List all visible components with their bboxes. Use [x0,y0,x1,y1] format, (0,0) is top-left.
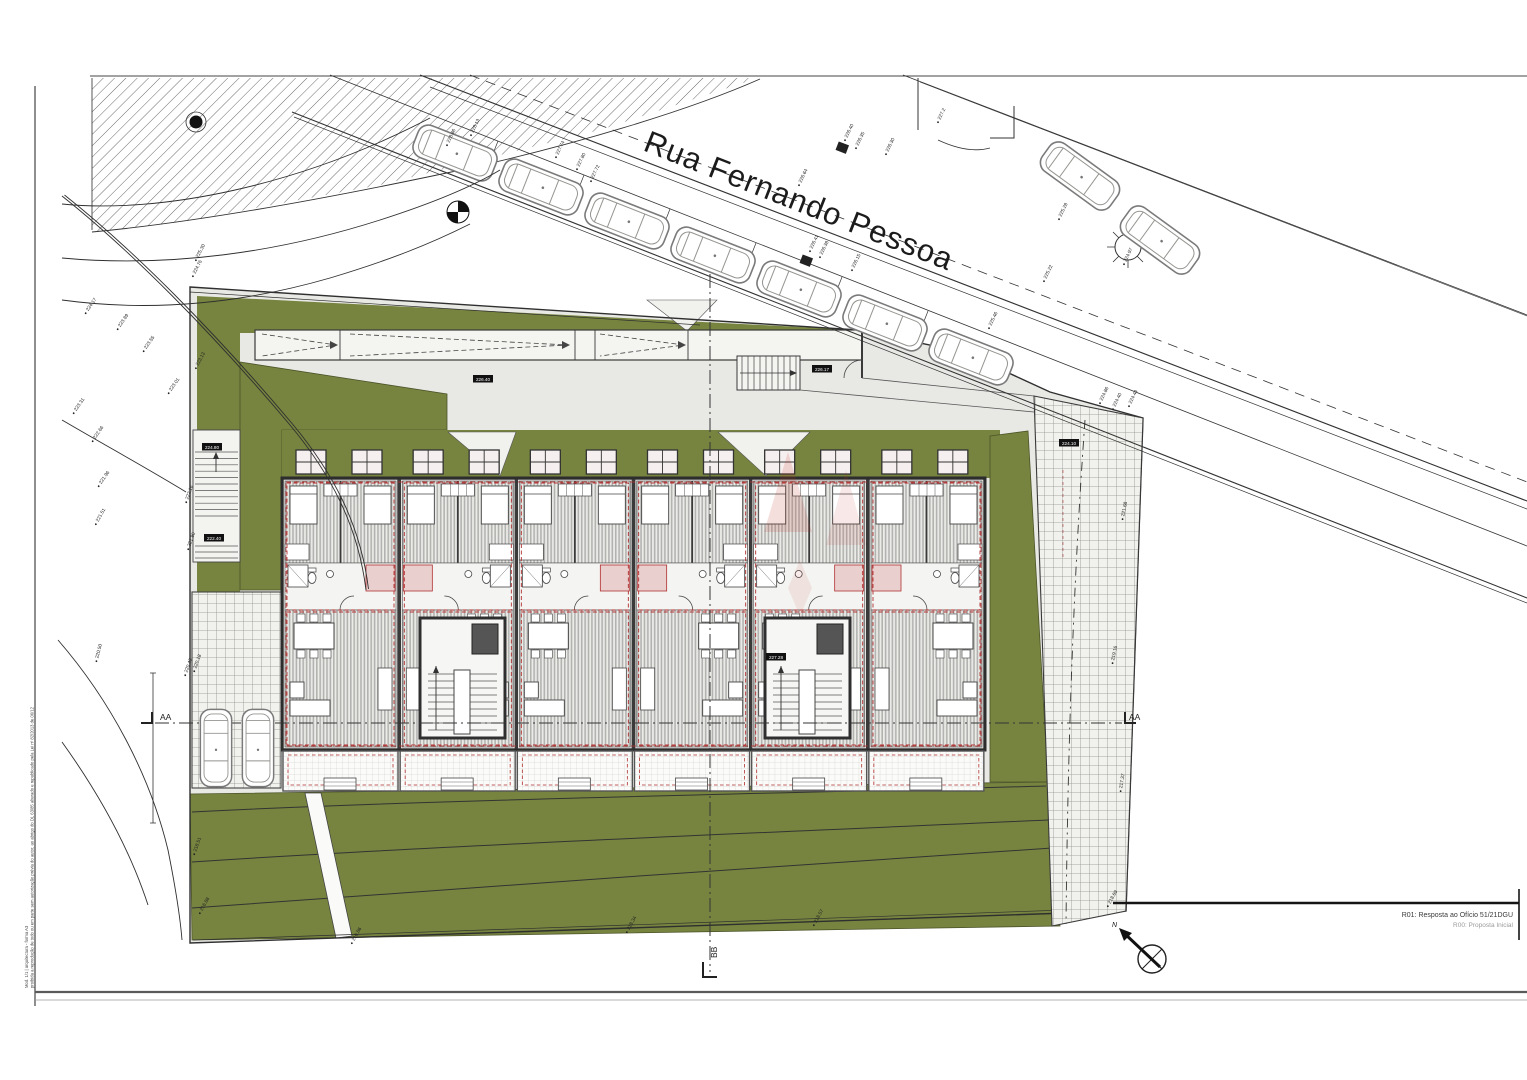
section-label-bb: BB [709,946,719,958]
svg-text:226.40: 226.40 [476,377,490,382]
elevation-label: 224.76 [190,259,204,279]
elevation-label: 226.40 [842,123,856,143]
svg-text:226.40: 226.40 [844,123,856,139]
lawn-upper-strip [197,296,858,333]
dwelling-unit [869,479,985,750]
elevation-label: 225.22 [1041,264,1055,284]
svg-text:226.30: 226.30 [885,137,897,153]
skylight [469,450,499,474]
level-box: 224.10 [1059,439,1079,447]
exterior-stairs-east [737,356,800,390]
elevation-label: 225.30 [193,243,207,263]
section-label-aa-right: AA [1129,712,1141,722]
level-box: 227.28 [766,653,786,661]
parked-car [668,224,759,286]
level-box: 224.80 [202,443,222,451]
site-plan-drawing: AA AA BB Rua Fernando Pessoa [0,0,1527,1080]
catch-basin [836,141,849,153]
dwelling-unit [283,479,399,750]
svg-text:227.2: 227.2 [937,107,948,121]
catch-basin [800,254,813,266]
svg-text:224.80: 224.80 [205,445,219,450]
svg-text:226.15: 226.15 [851,253,863,269]
elevation-label: 223.31 [71,397,87,416]
svg-text:224.97: 224.97 [1123,247,1135,263]
skylight [882,450,912,474]
svg-text:224.17: 224.17 [85,297,99,313]
parked-car [1116,202,1204,279]
elevation-label: 224.44 [1126,389,1140,409]
elevation-label: 221.96 [96,470,112,489]
elevation-label: 226.15 [849,253,863,273]
svg-text:226.41: 226.41 [809,234,821,250]
elevation-label: 227.74 [553,140,567,160]
svg-text:227.74: 227.74 [555,140,567,156]
skylight [296,450,326,474]
driveway [1034,396,1143,926]
svg-text:226.35: 226.35 [855,131,867,147]
dwelling-unit [517,479,633,750]
svg-text:223.55: 223.55 [143,335,157,351]
patio [283,751,398,791]
svg-text:223.89: 223.89 [117,313,131,329]
elevation-label: 226.38 [817,240,831,260]
elevation-label: 227.72 [588,164,602,184]
elevation-label: 224.40 [1110,392,1124,412]
revision-r01: R01: Resposta ao Ofício 51/21DGU [1402,912,1513,919]
stair-core [420,618,505,738]
elevation-label: 225.46 [986,311,1000,331]
geodetic-survey-marker [447,201,469,223]
parking-area [150,592,281,823]
svg-text:221.51: 221.51 [95,507,108,523]
stair-core [765,618,850,738]
skylight [530,450,560,474]
parked-car [582,190,673,252]
elevation-label: 225.28 [1056,202,1070,222]
level-box: 226.40 [473,375,493,383]
svg-text:224.40: 224.40 [1112,392,1124,408]
lawn-left-margin [197,300,240,430]
parked-car [1036,138,1124,215]
svg-text:221.96: 221.96 [98,470,112,486]
elevation-label: 224.17 [83,297,99,316]
svg-text:227.80: 227.80 [576,152,588,168]
elevation-label: 223.01 [166,377,182,396]
elevation-label: 226.35 [853,131,867,151]
elevation-label: 223.55 [141,335,157,354]
svg-text:223.31: 223.31 [73,397,87,413]
svg-text:224.44: 224.44 [1128,389,1140,405]
elevation-label: 221.51 [93,507,108,526]
building [282,450,985,791]
site-plan-page: AA AA BB Rua Fernando Pessoa [0,0,1527,1080]
svg-text:224.10: 224.10 [1062,441,1076,446]
skylight [586,450,616,474]
skylight [704,450,734,474]
svg-text:224.76: 224.76 [192,259,204,275]
svg-text:222.40: 222.40 [207,536,221,541]
elevation-label: 226.41 [807,234,821,254]
dwelling-unit [634,479,750,750]
svg-text:223.01: 223.01 [168,377,182,393]
elevation-label: 227.2 [935,107,948,124]
patio [635,751,750,791]
patio [400,751,515,791]
side-note-line1: Mod. 1/1 | arquitectura - forma A3 [24,925,29,988]
level-box: 226.17 [812,365,832,373]
svg-text:220.50: 220.50 [94,643,104,659]
revision-r00: R00: Proposta Inicial [1453,922,1514,929]
north-label: N [1112,922,1118,929]
svg-text:225.22: 225.22 [1043,264,1055,280]
svg-text:225.28: 225.28 [1058,202,1070,218]
parked-car [200,709,231,786]
svg-text:222.66: 222.66 [92,425,106,441]
parked-car [496,156,587,218]
patio [752,751,867,791]
svg-text:225.46: 225.46 [988,311,1000,327]
parked-car [242,709,273,786]
skylight [648,450,678,474]
side-note-line2: proibida a reprodução de todo ou em part… [30,706,35,988]
svg-text:224.86: 224.86 [1099,386,1111,402]
svg-text:226.38: 226.38 [819,240,831,256]
svg-text:227.72: 227.72 [590,164,602,180]
skylight [352,450,382,474]
north-arrow: N [1112,922,1166,973]
svg-text:226.17: 226.17 [815,367,829,372]
elevation-label: 224.86 [1097,386,1111,406]
level-box: 222.40 [204,534,224,542]
section-label-aa-left: AA [160,712,172,722]
elevation-label: 220.50 [93,643,104,663]
elevation-label: 227.80 [574,152,588,172]
skylight [413,450,443,474]
svg-text:226.64: 226.64 [798,168,810,184]
parked-car [754,258,845,320]
elevation-label: 223.89 [115,313,131,332]
lawn-left-margin-lower [197,562,240,592]
patio [517,751,632,791]
skylight [938,450,968,474]
skylight [821,450,851,474]
svg-text:227.28: 227.28 [769,655,783,660]
patio [869,751,984,791]
elevation-label: 226.30 [883,137,897,157]
